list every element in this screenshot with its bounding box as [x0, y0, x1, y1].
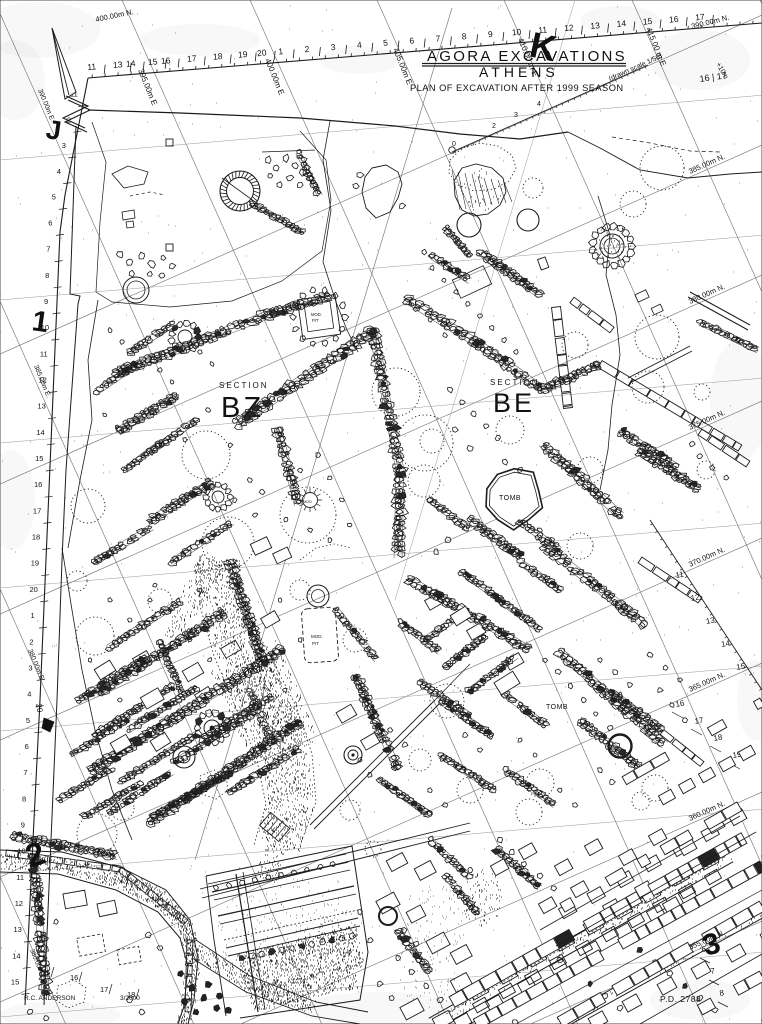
svg-text:P.D. 2788: P.D. 2788 — [660, 994, 701, 1004]
svg-text:8: 8 — [22, 794, 26, 803]
svg-text:1: 1 — [30, 305, 50, 339]
svg-text:13: 13 — [37, 402, 45, 411]
svg-text:TOMB: TOMB — [546, 704, 568, 711]
svg-text:16: 16 — [70, 973, 78, 982]
svg-text:1: 1 — [31, 611, 35, 620]
svg-text:BE: BE — [493, 388, 535, 418]
svg-text:13: 13 — [14, 925, 22, 934]
svg-text:8: 8 — [45, 271, 49, 280]
svg-text:12: 12 — [15, 899, 23, 908]
svg-text:4: 4 — [57, 167, 61, 176]
svg-text:MOD.: MOD. — [311, 312, 322, 317]
svg-text:PIT: PIT — [312, 318, 319, 323]
svg-text:385.00m E.: 385.00m E. — [32, 364, 52, 399]
svg-text:7: 7 — [23, 768, 27, 777]
svg-text:4: 4 — [27, 690, 31, 699]
svg-text:5: 5 — [26, 716, 30, 725]
svg-text:400.00m N.: 400.00m N. — [95, 7, 135, 24]
svg-text:MOD: MOD — [303, 500, 312, 504]
svg-text:R.C. ANDERSON: R.C. ANDERSON — [24, 995, 76, 1002]
svg-text:3: 3 — [330, 42, 336, 52]
svg-text:15: 15 — [11, 978, 19, 987]
svg-text:20: 20 — [30, 585, 38, 594]
svg-text:13: 13 — [113, 59, 124, 70]
svg-text:11: 11 — [40, 349, 48, 358]
svg-text:4: 4 — [357, 40, 363, 50]
svg-text:16: 16 — [34, 480, 42, 489]
svg-text:1: 1 — [278, 46, 284, 56]
svg-text:3: 3 — [514, 112, 518, 119]
svg-text:6: 6 — [25, 742, 29, 751]
svg-text:17: 17 — [694, 715, 705, 726]
svg-text:14: 14 — [616, 18, 627, 29]
svg-text:16: 16 — [669, 14, 680, 25]
svg-text:5: 5 — [52, 193, 56, 202]
svg-text:J: J — [44, 114, 63, 146]
svg-text:18: 18 — [32, 533, 40, 542]
svg-text:20: 20 — [257, 47, 268, 58]
svg-text:TOMB: TOMB — [499, 495, 521, 502]
svg-text:MOD.: MOD. — [311, 634, 323, 639]
svg-text:12: 12 — [564, 22, 575, 33]
svg-text:14: 14 — [126, 58, 137, 69]
svg-text:17: 17 — [33, 506, 41, 515]
svg-text:15: 15 — [736, 661, 747, 672]
svg-text:PIT: PIT — [312, 641, 319, 646]
svg-text:14: 14 — [12, 951, 20, 960]
svg-text:15: 15 — [642, 16, 653, 27]
svg-text:SECTION: SECTION — [219, 381, 269, 390]
svg-text:19: 19 — [31, 559, 39, 568]
svg-text:6: 6 — [409, 35, 415, 45]
svg-text:17: 17 — [187, 53, 198, 64]
svg-text:9: 9 — [488, 29, 494, 39]
svg-text:16: 16 — [675, 698, 686, 709]
svg-text:20: 20 — [34, 703, 45, 714]
svg-text:5: 5 — [383, 38, 389, 48]
svg-text:17: 17 — [100, 985, 108, 994]
svg-text:13: 13 — [590, 20, 601, 31]
svg-text:2: 2 — [304, 44, 310, 54]
svg-text:9: 9 — [21, 820, 25, 829]
svg-text:11: 11 — [87, 61, 97, 72]
svg-text:15: 15 — [35, 454, 43, 463]
svg-text:4: 4 — [537, 101, 541, 108]
svg-text:7: 7 — [435, 33, 441, 43]
svg-text:2: 2 — [29, 637, 33, 646]
svg-text:14: 14 — [36, 428, 44, 437]
svg-text:395.00m E: 395.00m E — [136, 67, 159, 106]
svg-text:7: 7 — [46, 245, 50, 254]
svg-text:6: 6 — [48, 219, 52, 228]
svg-text:PLAN OF EXCAVATION AFTER 1999: PLAN OF EXCAVATION AFTER 1999 SEASON — [410, 83, 624, 93]
svg-text:8: 8 — [461, 31, 467, 41]
svg-text:19: 19 — [238, 49, 249, 60]
svg-text:15: 15 — [148, 56, 159, 67]
svg-text:7: 7 — [710, 966, 716, 976]
svg-text:10: 10 — [511, 27, 522, 38]
svg-text:9: 9 — [44, 297, 48, 306]
svg-text:SECTION: SECTION — [490, 378, 540, 387]
svg-text:18: 18 — [213, 51, 224, 62]
svg-text:11: 11 — [16, 873, 24, 882]
svg-text:16: 16 — [161, 55, 172, 66]
svg-text:400.00m E: 400.00m E — [263, 57, 286, 96]
svg-text:2: 2 — [492, 123, 496, 130]
svg-text:3: 3 — [62, 141, 66, 150]
